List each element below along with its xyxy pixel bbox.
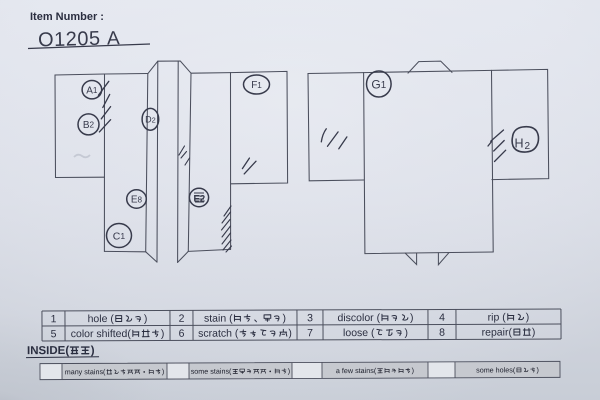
- svg-text:5: 5: [51, 328, 57, 340]
- svg-text:4: 4: [439, 312, 445, 324]
- svg-text:H: H: [515, 137, 524, 151]
- svg-text:1: 1: [381, 80, 386, 91]
- svg-text:stain (: stain (: [204, 313, 233, 325]
- svg-text:scratch (: scratch (: [198, 328, 239, 340]
- svg-text:A: A: [107, 28, 121, 49]
- svg-text:some holes(: some holes(: [476, 365, 516, 374]
- svg-text:): ): [532, 326, 536, 338]
- svg-text:repair(: repair(: [482, 326, 513, 338]
- svg-text:discolor (: discolor (: [337, 312, 380, 324]
- svg-text:): ): [288, 327, 292, 339]
- svg-text:1: 1: [120, 231, 125, 241]
- svg-text:7: 7: [307, 327, 313, 339]
- svg-text:some stains(: some stains(: [191, 367, 232, 376]
- svg-text:): ): [162, 367, 164, 376]
- svg-text:): ): [282, 312, 286, 324]
- svg-text:3: 3: [307, 312, 313, 324]
- svg-text:2: 2: [179, 313, 185, 325]
- svg-text:1: 1: [257, 81, 262, 90]
- svg-text:rip (: rip (: [488, 312, 507, 324]
- svg-text:color shifted(: color shifted(: [71, 328, 132, 340]
- svg-text:): ): [144, 313, 148, 325]
- svg-text:hole (: hole (: [88, 313, 115, 325]
- svg-text:2: 2: [90, 121, 95, 130]
- svg-text:loose (: loose (: [343, 327, 375, 339]
- svg-text:Item Number :: Item Number :: [30, 11, 104, 23]
- svg-text:8: 8: [138, 195, 143, 204]
- svg-text:): ): [410, 312, 414, 324]
- svg-text:G: G: [371, 77, 380, 91]
- svg-text:): ): [161, 328, 165, 340]
- svg-text:): ): [536, 365, 538, 374]
- svg-text:8: 8: [439, 327, 445, 339]
- svg-text:): ): [405, 327, 409, 339]
- svg-text:): ): [412, 366, 414, 375]
- svg-text:1: 1: [93, 86, 98, 95]
- svg-text:1: 1: [51, 313, 57, 325]
- svg-text:): ): [526, 311, 530, 323]
- svg-text:6: 6: [179, 328, 185, 340]
- svg-text:): ): [91, 345, 95, 357]
- svg-text:2: 2: [525, 141, 531, 152]
- svg-text:many stains(: many stains(: [65, 367, 106, 376]
- svg-text:2: 2: [152, 115, 156, 124]
- svg-text:): ): [288, 366, 290, 375]
- svg-text:a few stains(: a few stains(: [336, 366, 377, 375]
- svg-text:INSIDE(: INSIDE(: [27, 345, 69, 357]
